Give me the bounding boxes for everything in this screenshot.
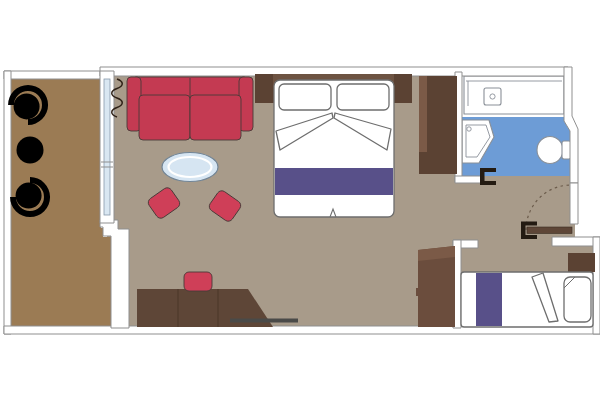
sofa-bed-runner <box>476 273 502 326</box>
balcony-table <box>17 137 44 164</box>
sofa-seat-right <box>190 95 241 140</box>
vanity-counter <box>464 76 564 114</box>
low-cabinet <box>416 246 455 327</box>
desk-chair <box>184 272 212 291</box>
desk-rail <box>230 319 298 323</box>
sofa <box>127 77 253 140</box>
wall-balcony-top <box>4 71 103 79</box>
double-bed <box>274 80 394 217</box>
sofa-seat-left <box>139 95 190 140</box>
wall-balcony-left <box>4 71 11 334</box>
wall-bathroom-bottom <box>455 176 484 183</box>
nightstand-right <box>394 74 412 103</box>
wall-corridor-right <box>570 183 578 224</box>
sliding-door-glass <box>104 79 110 215</box>
pillow-right <box>337 84 389 110</box>
wall-right <box>593 237 600 334</box>
shelf <box>568 253 595 272</box>
entry-door-leaf <box>527 227 572 234</box>
coffee-table <box>162 153 218 182</box>
wardrobe-edge <box>419 76 427 152</box>
washbasin <box>484 88 501 105</box>
floor-plan <box>0 0 600 400</box>
nightstand-left <box>255 74 273 103</box>
floor-plan-svg <box>0 0 600 400</box>
pillow-left <box>279 84 331 110</box>
bathroom <box>458 70 576 178</box>
hallway-floor <box>455 176 575 246</box>
toilet-bowl <box>537 137 563 164</box>
bed-runner <box>275 168 393 195</box>
low-cabinet-handle <box>416 288 420 296</box>
